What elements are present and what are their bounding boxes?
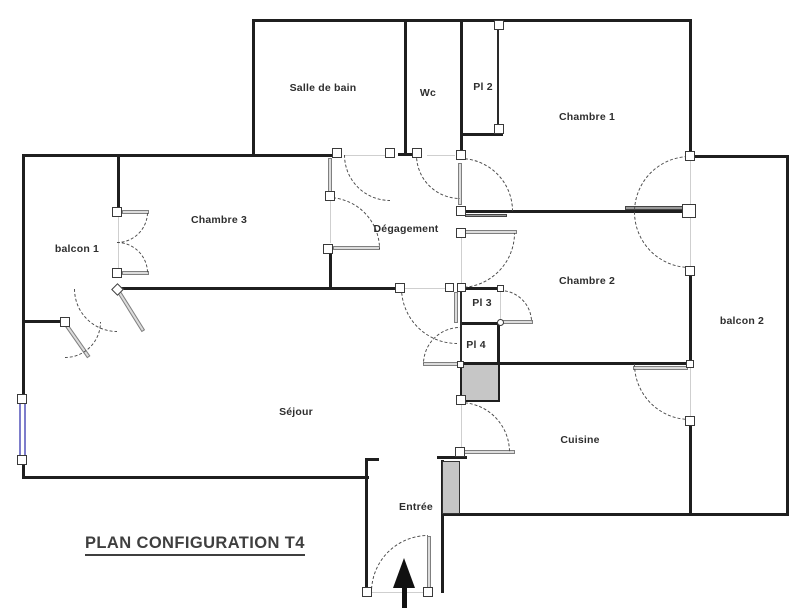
hinge-square [685, 416, 695, 426]
hinge-square [385, 148, 395, 158]
room-label-pl2: Pl 2 [473, 81, 492, 93]
door-leaf [465, 214, 507, 217]
entrance-arrow-head [393, 558, 415, 588]
room-label-pl4: Pl 4 [466, 339, 485, 351]
shaft-block [462, 365, 498, 400]
wall [252, 19, 692, 22]
room-label-sejour: Séjour [279, 406, 313, 418]
hinge-square [112, 268, 122, 278]
wall [689, 19, 692, 158]
room-label-balcon1: balcon 1 [55, 243, 99, 255]
room-label-chambre2: Chambre 2 [559, 275, 615, 287]
hinge-square [456, 395, 466, 405]
shaft-block [442, 461, 460, 514]
hinge-square [323, 244, 333, 254]
hinge-square [455, 447, 465, 457]
room-label-wc: Wc [420, 87, 436, 99]
plan-title: PLAN CONFIGURATION T4 [85, 534, 305, 556]
hinge-square [60, 317, 70, 327]
wall [460, 19, 463, 159]
hinge-square [686, 360, 694, 368]
door-leaf-diagonal [117, 291, 145, 332]
wall [22, 154, 25, 400]
room-label-degagement: Dégagement [373, 223, 438, 235]
hinge-square [423, 587, 433, 597]
hinge-square [497, 319, 504, 326]
hinge-square [494, 124, 504, 134]
wall [689, 419, 692, 516]
wall [117, 287, 400, 290]
hinge-square [332, 148, 342, 158]
wall [365, 458, 379, 461]
hinge-square [412, 148, 422, 158]
wall [689, 276, 692, 366]
room-label-entree: Entrée [399, 501, 433, 513]
guide-line [690, 367, 691, 419]
hinge-square [17, 455, 27, 465]
hinge-square [457, 283, 466, 292]
hinge-square [682, 204, 696, 218]
hinge-square [17, 394, 27, 404]
room-label-balcon2: balcon 2 [720, 315, 764, 327]
hinge-square [494, 20, 504, 30]
wall [786, 155, 789, 516]
room-label-salle-de-bain: Salle de bain [290, 82, 357, 94]
wall [404, 19, 407, 153]
window-symbol [19, 399, 26, 461]
hinge-square [685, 266, 695, 276]
hinge-square [456, 228, 466, 238]
wall [22, 320, 64, 323]
wall [365, 458, 368, 594]
wall [22, 154, 337, 157]
floor-plan: PLAN CONFIGURATION T4 Salle de bainWcPl … [0, 0, 811, 608]
hinge-square [457, 361, 464, 368]
wall-thin [497, 23, 499, 129]
wall-thin [460, 289, 462, 364]
wall [329, 254, 332, 290]
hinge-square [395, 283, 405, 293]
hinge-square [112, 207, 122, 217]
hinge-square [497, 285, 504, 292]
hinge-square [445, 283, 454, 292]
room-label-chambre3: Chambre 3 [191, 214, 247, 226]
room-label-chambre1: Chambre 1 [559, 111, 615, 123]
wall [441, 513, 789, 516]
wall [689, 155, 789, 158]
hinge-square [362, 587, 372, 597]
wall [252, 19, 255, 156]
wall [117, 154, 120, 214]
hinge-square [685, 151, 695, 161]
room-label-cuisine: Cuisine [560, 434, 599, 446]
guide-line [372, 592, 424, 593]
hinge-square [325, 191, 335, 201]
wall [22, 476, 369, 479]
room-label-pl3: Pl 3 [472, 297, 491, 309]
wall [497, 325, 500, 365]
hinge-square [456, 206, 466, 216]
hinge-square [456, 150, 466, 160]
